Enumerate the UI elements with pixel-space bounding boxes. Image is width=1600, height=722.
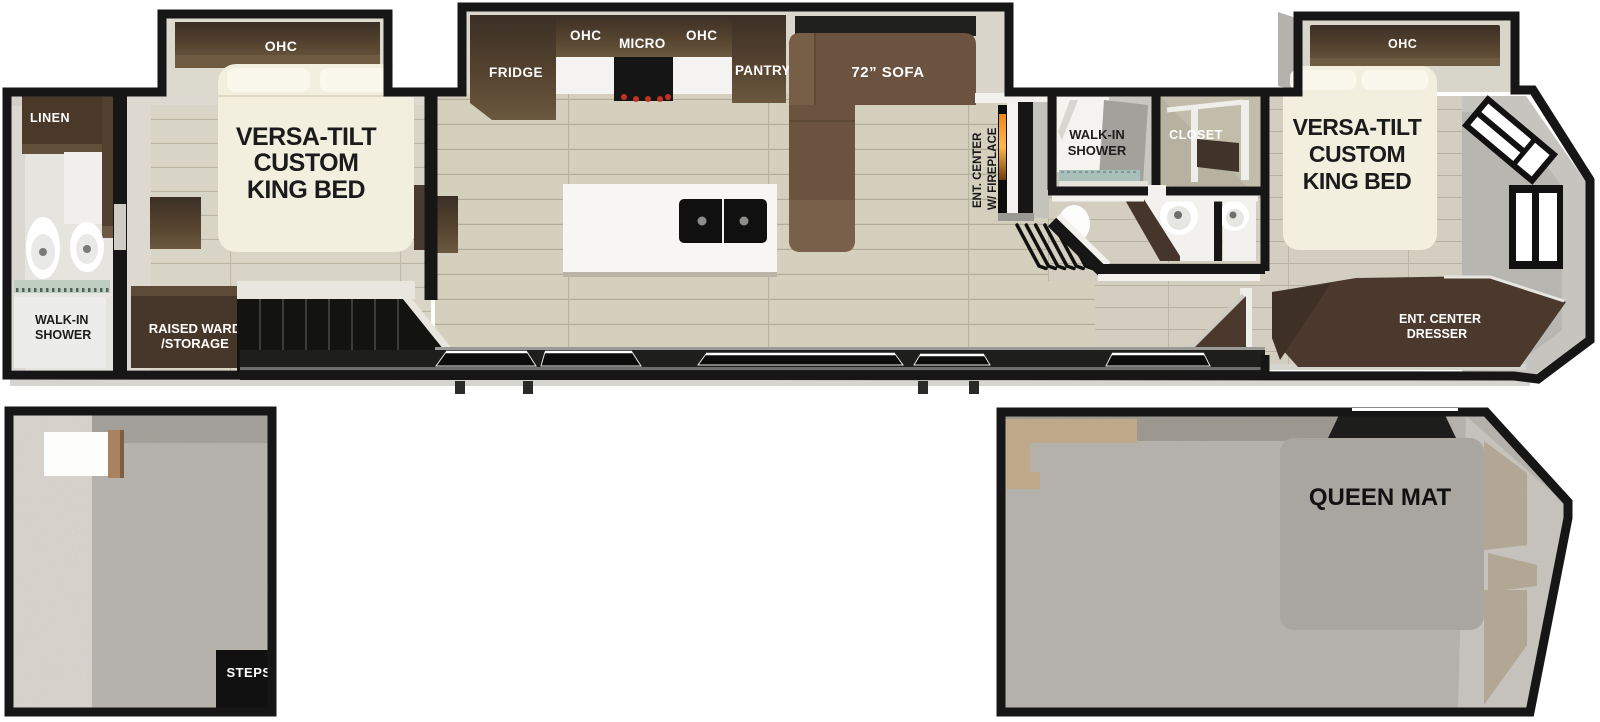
svg-text:CLOSET: CLOSET [1169,128,1223,142]
svg-text:MICRO: MICRO [619,36,666,51]
svg-text:DRESSER: DRESSER [1407,327,1467,341]
svg-text:CUSTOM: CUSTOM [1309,141,1405,167]
svg-text:OHC: OHC [686,28,718,43]
svg-text:FRIDGE: FRIDGE [489,65,543,80]
svg-text:KING BED: KING BED [1303,168,1411,194]
svg-text:ENT. CENTER: ENT. CENTER [1399,312,1481,326]
svg-text:OHC: OHC [570,28,602,43]
svg-text:PANTRY: PANTRY [735,63,791,78]
svg-text:VERSA-TILT: VERSA-TILT [1293,114,1422,140]
svg-text:QUEEN MAT: QUEEN MAT [1309,484,1452,511]
svg-text:OHC: OHC [265,38,298,54]
svg-text:OHC: OHC [1388,37,1417,51]
svg-text:W/ FIREPLACE: W/ FIREPLACE [987,127,999,210]
svg-text:SHOWER: SHOWER [1068,143,1127,158]
svg-text:RAISED WARD: RAISED WARD [149,321,241,336]
svg-text:/STORAGE: /STORAGE [161,336,229,351]
svg-text:STEPS: STEPS [226,665,271,680]
svg-text:SHOWER: SHOWER [35,328,91,342]
svg-text:72” SOFA: 72” SOFA [851,64,924,81]
svg-text:LINEN: LINEN [30,111,70,125]
svg-text:VERSA-TILT: VERSA-TILT [236,123,377,151]
svg-text:CUSTOM: CUSTOM [254,149,359,177]
svg-text:WALK-IN: WALK-IN [1069,127,1125,142]
svg-text:KING BED: KING BED [247,176,365,204]
svg-text:WALK-IN: WALK-IN [35,313,88,327]
svg-text:ENT. CENTER: ENT. CENTER [972,132,984,208]
